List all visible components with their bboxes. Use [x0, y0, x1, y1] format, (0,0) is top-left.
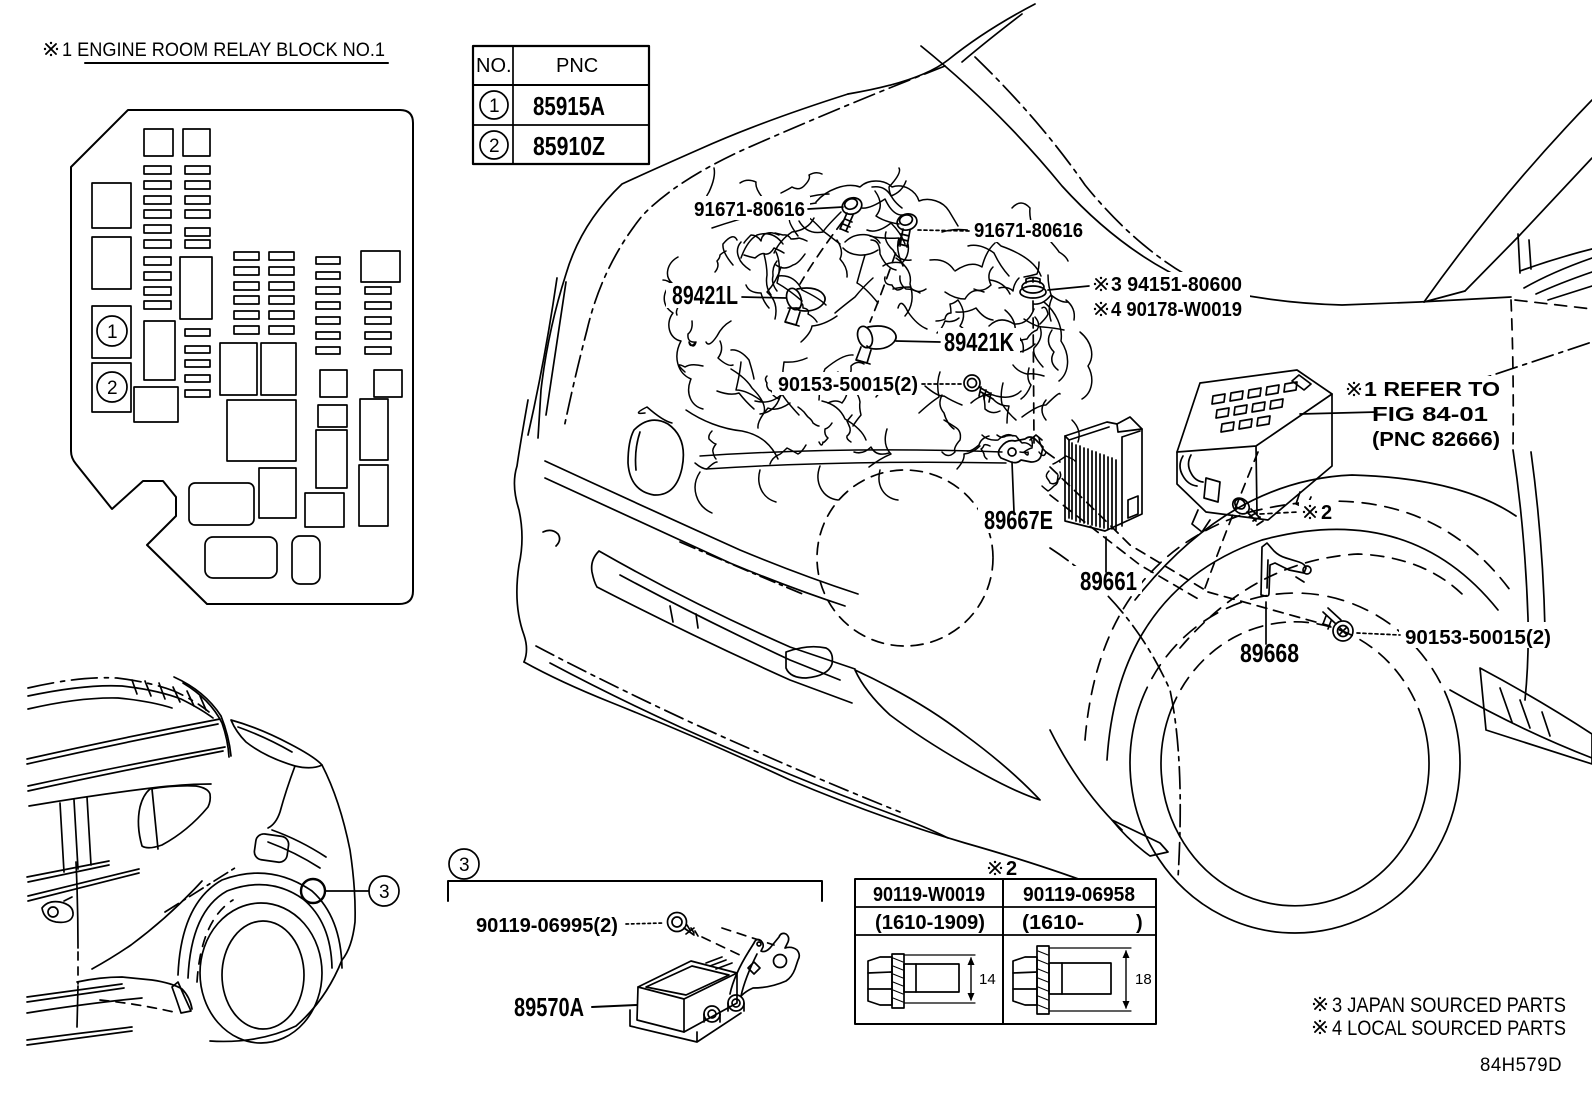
svg-text:3: 3: [379, 882, 390, 903]
svg-text:89421L: 89421L: [672, 280, 738, 310]
svg-text:85910Z: 85910Z: [533, 131, 605, 161]
svg-text:89661: 89661: [1080, 566, 1137, 596]
svg-text:85915A: 85915A: [533, 91, 605, 121]
svg-text:90153-50015(2): 90153-50015(2): [778, 374, 918, 396]
svg-text:4 90178-W0019: 4 90178-W0019: [1111, 299, 1242, 321]
svg-text:3 94151-80600: 3 94151-80600: [1111, 274, 1242, 296]
svg-text:90119-06958: 90119-06958: [1023, 884, 1135, 906]
svg-text:(PNC 82666): (PNC 82666): [1372, 429, 1500, 451]
svg-text:89421K: 89421K: [944, 327, 1014, 357]
svg-text:4 LOCAL SOURCED PARTS: 4 LOCAL SOURCED PARTS: [1332, 1017, 1566, 1040]
svg-text:84H579D: 84H579D: [1480, 1055, 1562, 1076]
svg-text:(1610-: (1610-: [1022, 912, 1084, 934]
svg-text:2: 2: [107, 378, 118, 399]
svg-text:1 REFER TO: 1 REFER TO: [1364, 379, 1500, 401]
svg-text:PNC: PNC: [556, 55, 598, 77]
svg-text:91671-80616: 91671-80616: [974, 220, 1083, 242]
svg-text:2: 2: [1006, 858, 1017, 880]
svg-text:90153-50015(2): 90153-50015(2): [1405, 627, 1551, 649]
svg-text:90119-06995(2): 90119-06995(2): [476, 915, 618, 937]
svg-text:91671-80616: 91671-80616: [694, 199, 805, 221]
svg-text:90119-W0019: 90119-W0019: [873, 884, 985, 906]
svg-text:1 ENGINE ROOM RELAY BLOCK NO.1: 1 ENGINE ROOM RELAY BLOCK NO.1: [62, 40, 385, 61]
svg-text:14: 14: [979, 971, 996, 988]
svg-text:NO.: NO.: [476, 55, 512, 77]
svg-text:1: 1: [489, 96, 500, 117]
svg-text:89570A: 89570A: [514, 992, 584, 1022]
svg-text:3 JAPAN SOURCED PARTS: 3 JAPAN SOURCED PARTS: [1332, 994, 1566, 1017]
svg-text:(1610-1909): (1610-1909): [875, 912, 985, 934]
svg-text:2: 2: [1321, 502, 1332, 524]
svg-text:89668: 89668: [1240, 638, 1299, 668]
svg-text:3: 3: [459, 855, 470, 876]
svg-text:18: 18: [1135, 971, 1152, 988]
svg-text:): ): [1136, 912, 1143, 934]
svg-text:2: 2: [489, 136, 500, 157]
svg-text:89667E: 89667E: [984, 505, 1053, 535]
svg-text:FIG 84-01: FIG 84-01: [1372, 404, 1488, 426]
svg-text:1: 1: [107, 322, 118, 343]
